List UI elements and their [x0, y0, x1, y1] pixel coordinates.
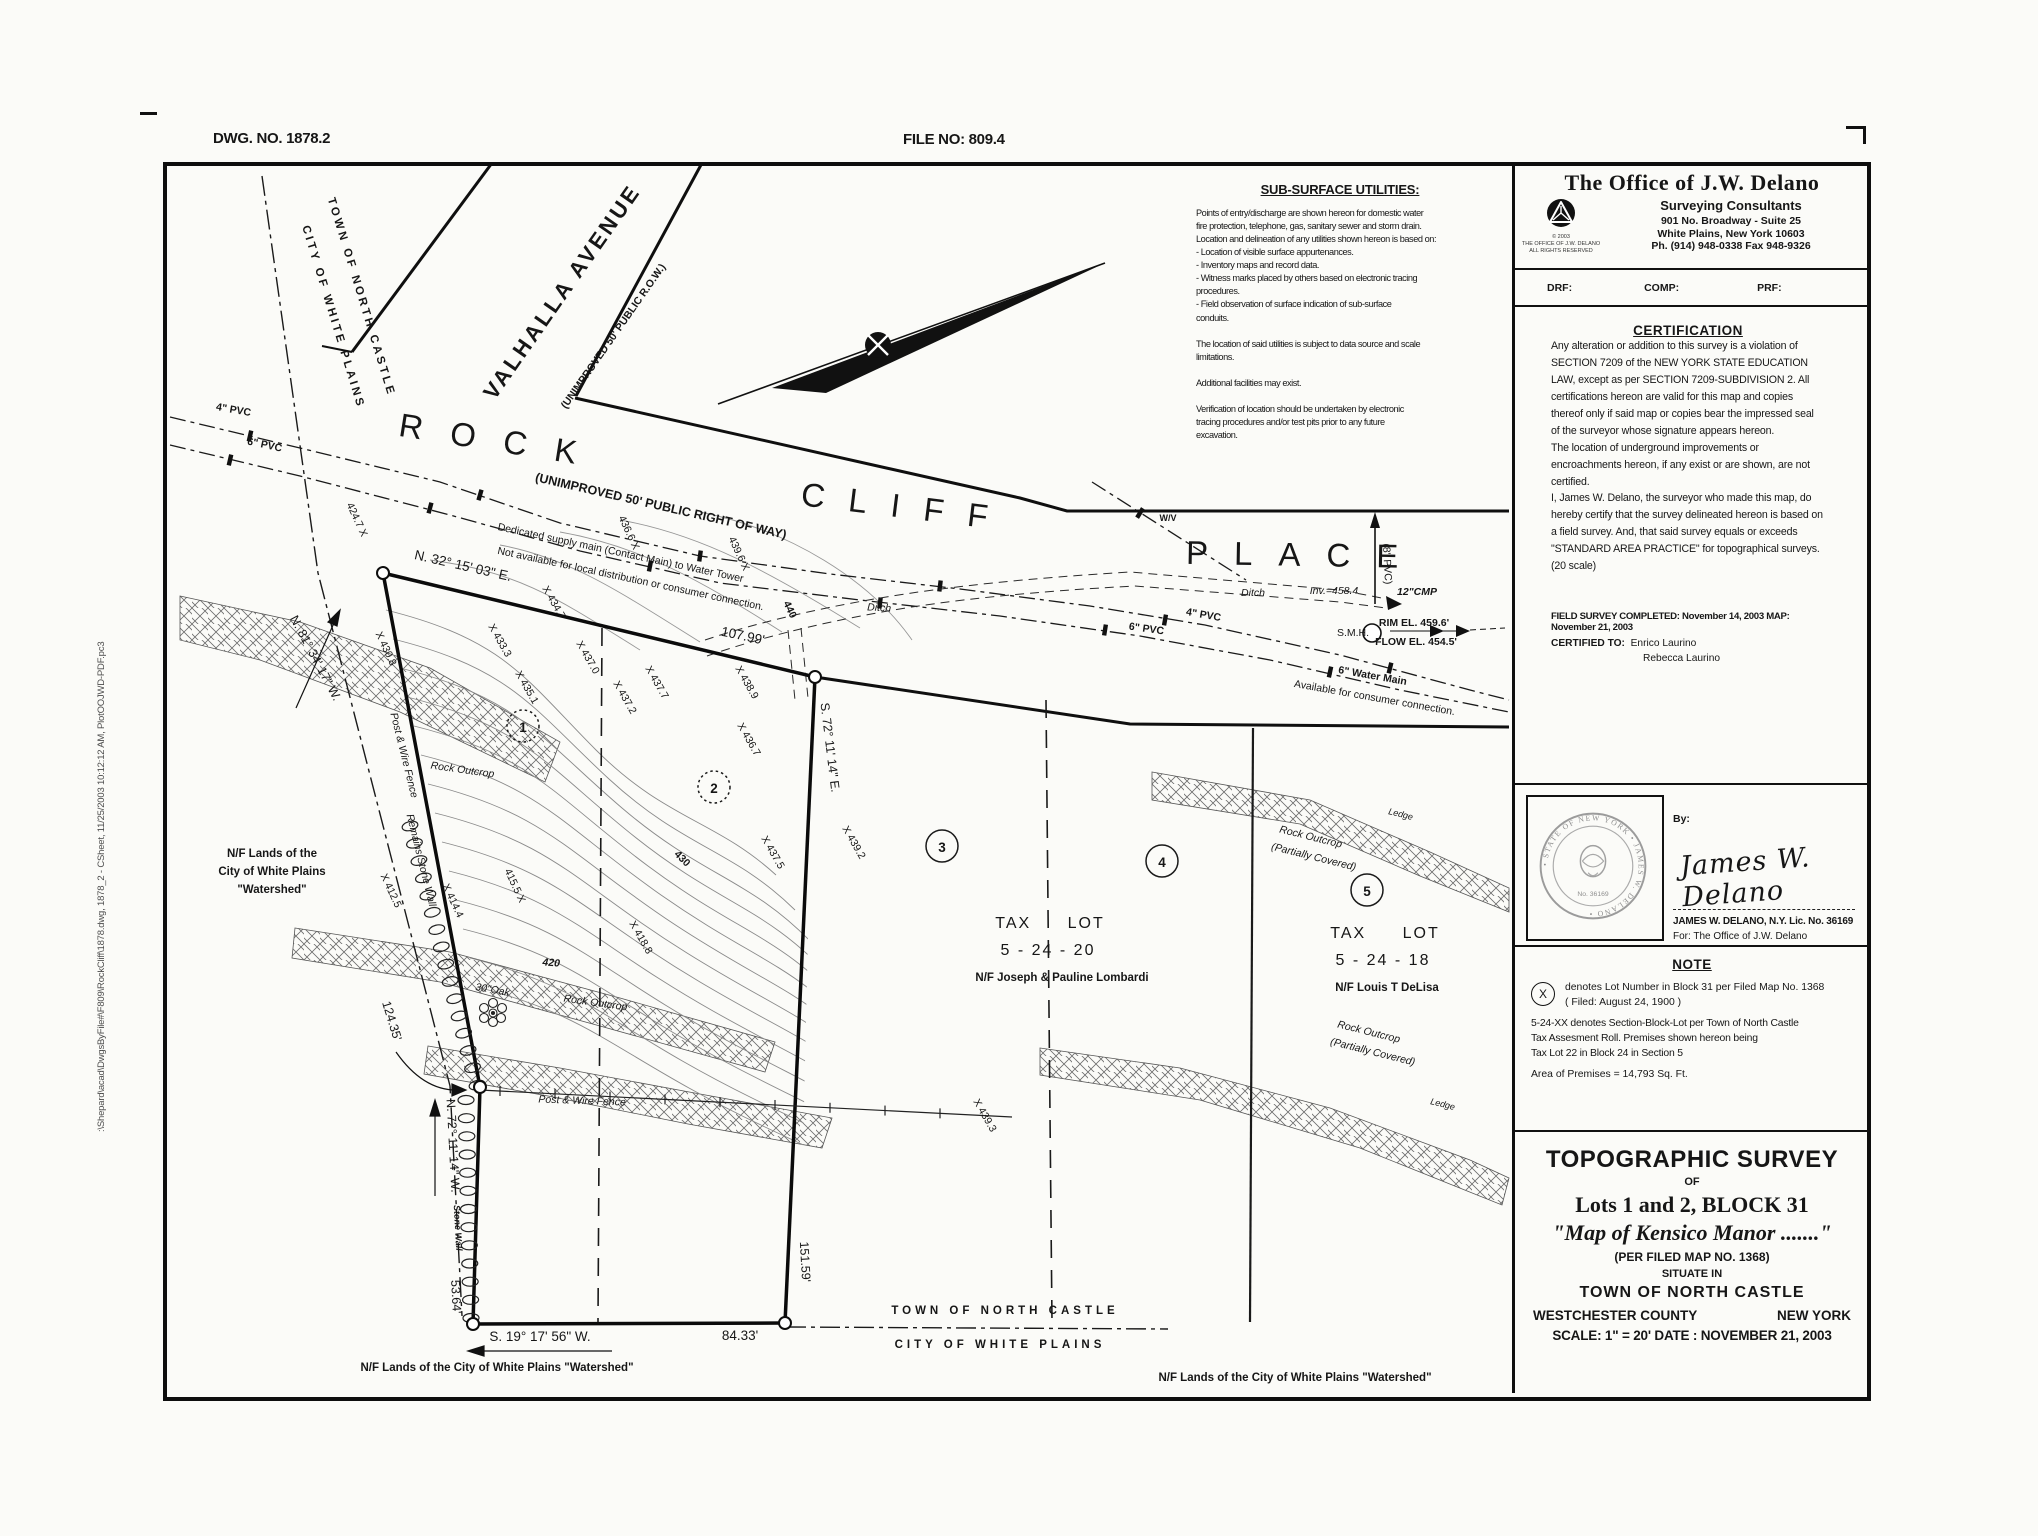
- pipe-label-4pvc-west: 4" PVC: [215, 401, 252, 419]
- distance-84-33: 84.33': [722, 1328, 758, 1343]
- water-main-note: Available for consumer connection.: [1293, 678, 1456, 718]
- ledge-label: Ledge: [1387, 806, 1414, 822]
- spot-elevation: X 433.3: [485, 622, 514, 659]
- drafting-row: DRF: COMP: PRF:: [1515, 270, 1869, 307]
- comp-label: COMP:: [1644, 282, 1679, 294]
- lot-number-5: 5: [1363, 884, 1371, 899]
- prf-label: PRF:: [1757, 282, 1782, 294]
- rim-elevation: RIM EL. 459.6': [1379, 617, 1449, 629]
- lot-number-3: 3: [938, 840, 946, 855]
- certification-paragraph: Any alteration or addition to this surve…: [1551, 338, 1825, 440]
- spot-elevation: 424.7 X: [344, 501, 370, 539]
- fence-label-west: Post & Wire Fence: [388, 711, 421, 799]
- title-town: TOWN OF NORTH CASTLE: [1515, 1284, 1869, 1302]
- firm-name: The Office of J.W. Delano: [1515, 170, 1869, 196]
- rock-outcrop-label: (Partially Covered): [1329, 1036, 1416, 1069]
- title-of: OF: [1515, 1176, 1869, 1188]
- tax-lot-20-number: 5 - 24 - 20: [1001, 942, 1096, 959]
- drf-label: DRF:: [1547, 282, 1572, 294]
- pipe-label-6pvc-west: 6" PVC: [246, 436, 283, 455]
- adjoiner-west-1: N/F Lands of the: [227, 848, 317, 860]
- rockcliff-row-note: (UNIMPROVED 50' PUBLIC RIGHT OF WAY): [534, 470, 788, 542]
- boundary-label-city-bottom: CITY OF WHITE PLAINS: [895, 1339, 1106, 1351]
- ditch-label: Ditch: [1241, 587, 1265, 599]
- note-item-3: Area of Premises = 14,793 Sq. Ft.: [1531, 1069, 1853, 1080]
- firm-header: The Office of J.W. Delano © 2003 THE OFF…: [1515, 162, 1869, 270]
- firm-subtitle: Surveying Consultants: [1607, 198, 1855, 214]
- spot-elevation: 415.5 X: [502, 867, 528, 905]
- title-scale-date: SCALE: 1" = 20' DATE : NOVEMBER 21, 2003: [1515, 1328, 1869, 1343]
- bearing-s19: S. 19° 17' 56" W.: [489, 1329, 590, 1344]
- tax-lot-20-title: TAX LOT: [995, 915, 1105, 932]
- note-section: NOTE X denotes Lot Number in Block 31 pe…: [1515, 947, 1869, 1132]
- title-state: NEW YORK: [1777, 1308, 1851, 1323]
- seal-signature-section: • STATE OF NEW YORK • JAMES W. DELANO • …: [1515, 785, 1869, 947]
- title-lots: Lots 1 and 2, BLOCK 31: [1515, 1192, 1869, 1218]
- certified-to-name-1: Enrico Laurino: [1631, 638, 1697, 649]
- distance-53-64: 53.64': [448, 1280, 464, 1314]
- firm-address-1: 901 No. Broadway - Suite 25: [1607, 215, 1855, 228]
- distance-151-59: 151.59': [797, 1241, 813, 1282]
- lot-number-4: 4: [1158, 855, 1166, 870]
- title-situate: SITUATE IN: [1515, 1268, 1869, 1280]
- stone-wall-label: Stone Wall: [452, 1205, 464, 1252]
- oak-tree-symbol: [480, 999, 507, 1027]
- pipe-label-4pvc-east: 4" PVC: [1185, 606, 1222, 624]
- title-survey-type: TOPOGRAPHIC SURVEY: [1515, 1146, 1869, 1174]
- ditch-flow-arrow: [1386, 596, 1402, 610]
- spot-elevation: X 437.5: [758, 834, 787, 871]
- note-item-2: 5-24-XX denotes Section-Block-Lot per To…: [1531, 1016, 1853, 1061]
- subsurface-utilities-note: SUB-SURFACE UTILITIES: Points of entry/d…: [1196, 182, 1484, 442]
- ditch-lines: [705, 572, 1392, 700]
- adjoiner-west-3: "Watershed": [237, 884, 306, 896]
- rock-outcrop-label: Rock Outcrop: [430, 760, 495, 781]
- surveyor-signature: James W. Delano: [1679, 839, 1863, 913]
- title-panel: The Office of J.W. Delano © 2003 THE OFF…: [1512, 162, 1869, 1393]
- rock-outcrop-label: (Partially Covered): [1270, 841, 1357, 874]
- spot-elevation: X 437.7: [642, 664, 671, 701]
- spot-elevation: X 436.7: [734, 721, 763, 758]
- tax-lot-18-owner: N/F Louis T DeLisa: [1335, 982, 1439, 994]
- certification-title: CERTIFICATION: [1551, 323, 1825, 338]
- municipal-boundary-label-town: TOWN OF NORTH CASTLE: [325, 196, 397, 398]
- spot-elevation: X 437.0: [573, 639, 602, 676]
- spot-elevation: 439.6 X: [726, 535, 752, 573]
- ledge-label: Ledge: [1429, 1096, 1456, 1112]
- fence-label-bottom: Post & Wire Fence: [538, 1093, 626, 1108]
- street-name-cliff: CLIFF: [799, 475, 1014, 538]
- firm-address-2: White Plains, New York 10603: [1607, 228, 1855, 241]
- distance-124-35: 124.35': [379, 999, 404, 1042]
- lot-number-symbol: X: [1531, 982, 1555, 1006]
- spot-elevation: X 438.9: [732, 664, 761, 701]
- spot-elevation: X 439.2: [839, 824, 868, 861]
- adjoiner-bottom-right: N/F Lands of the City of White Plains "W…: [1158, 1372, 1431, 1384]
- pvc8-label: (8" PVC): [1380, 543, 1394, 585]
- surveyor-name-license: JAMES W. DELANO, N.Y. Lic. No. 36169: [1673, 916, 1861, 927]
- certification-section: CERTIFICATION Any alteration or addition…: [1515, 307, 1869, 785]
- tax-lot-18-number: 5 - 24 - 18: [1336, 952, 1431, 969]
- title-filed-map: (PER FILED MAP NO. 1368): [1515, 1250, 1869, 1264]
- tax-lot-18-title: TAX LOT: [1330, 925, 1440, 942]
- street-name-rock: ROCK: [397, 406, 608, 475]
- utilities-body: Points of entry/discharge are shown here…: [1196, 207, 1484, 442]
- title-map-name: "Map of Kensico Manor .......": [1515, 1220, 1869, 1246]
- title-county: WESTCHESTER COUNTY: [1533, 1308, 1697, 1323]
- adjoiner-bottom-left: N/F Lands of the City of White Plains "W…: [360, 1362, 633, 1374]
- firm-phone: Ph. (914) 948-0338 Fax 948-9326: [1607, 240, 1855, 253]
- adjoiner-west-2: City of White Plains: [218, 866, 325, 878]
- water-main-label: 6" Water Main: [1337, 664, 1407, 688]
- surveyor-seal: • STATE OF NEW YORK • JAMES W. DELANO • …: [1526, 795, 1664, 941]
- certification-paragraph: I, James W. Delano, the surveyor who mad…: [1551, 490, 1825, 575]
- lot-number-1: 1: [519, 720, 527, 735]
- field-survey-dates: FIELD SURVEY COMPLETED: November 14, 200…: [1551, 611, 1825, 633]
- firm-logo-icon: [1546, 198, 1576, 228]
- culvert-label: 12"CMP: [1397, 586, 1438, 598]
- certified-to-label: CERTIFIED TO:: [1551, 638, 1625, 649]
- title-block: TOPOGRAPHIC SURVEY OF Lots 1 and 2, BLOC…: [1515, 1132, 1869, 1393]
- note-item-1b: ( Filed: August 24, 1900 ): [1565, 997, 1824, 1008]
- tax-lot-20-owner: N/F Joseph & Pauline Lombardi: [975, 972, 1148, 984]
- survey-sheet: DWG. NO. 1878.2 FILE NO: 809.4 :\Shepard…: [0, 0, 2038, 1536]
- firm-copyright: © 2003 THE OFFICE OF J.W. DELANO ALL RIG…: [1515, 234, 1607, 255]
- bearing-n72: N. 72° 11' 14" W.: [444, 1099, 463, 1193]
- bearing-s72: S. 72° 11' 14" E.: [818, 702, 843, 793]
- water-valve-label: W/V: [1160, 513, 1177, 523]
- invert-elevation: Inv.=458.4: [1310, 585, 1359, 597]
- contour-label-420: 420: [541, 956, 560, 969]
- note-item-1a: denotes Lot Number in Block 31 per Filed…: [1565, 982, 1824, 993]
- street-name-valhalla: VALHALLA AVENUE: [478, 179, 646, 403]
- by-label: By:: [1673, 813, 1690, 825]
- certification-paragraph: The location of underground improvements…: [1551, 440, 1825, 491]
- ditch-label: Ditch: [867, 601, 892, 614]
- signature-for-line: For: The Office of J.W. Delano: [1673, 931, 1861, 942]
- spot-elevation: X 437.2: [610, 679, 639, 716]
- note-title: NOTE: [1531, 957, 1853, 972]
- north-arrow: [718, 263, 1105, 404]
- interior-lot-lines: [598, 628, 1253, 1322]
- utilities-title: SUB-SURFACE UTILITIES:: [1196, 182, 1484, 197]
- contour-label-440: 440: [781, 599, 799, 620]
- spot-elevation: X 435.1: [512, 669, 541, 706]
- flow-elevation: FLOW EL. 454.5': [1375, 636, 1457, 648]
- lot-number-2: 2: [710, 781, 718, 796]
- boundary-label-town-bottom: TOWN OF NORTH CASTLE: [891, 1305, 1118, 1317]
- municipal-boundary-label-city: CITY OF WHITE PLAINS: [299, 224, 366, 410]
- manhole-label: S.M.H.: [1337, 627, 1369, 639]
- seal-license-number: No. 36169: [1577, 891, 1609, 898]
- certified-to-name-2: Rebecca Laurino: [1643, 653, 1825, 664]
